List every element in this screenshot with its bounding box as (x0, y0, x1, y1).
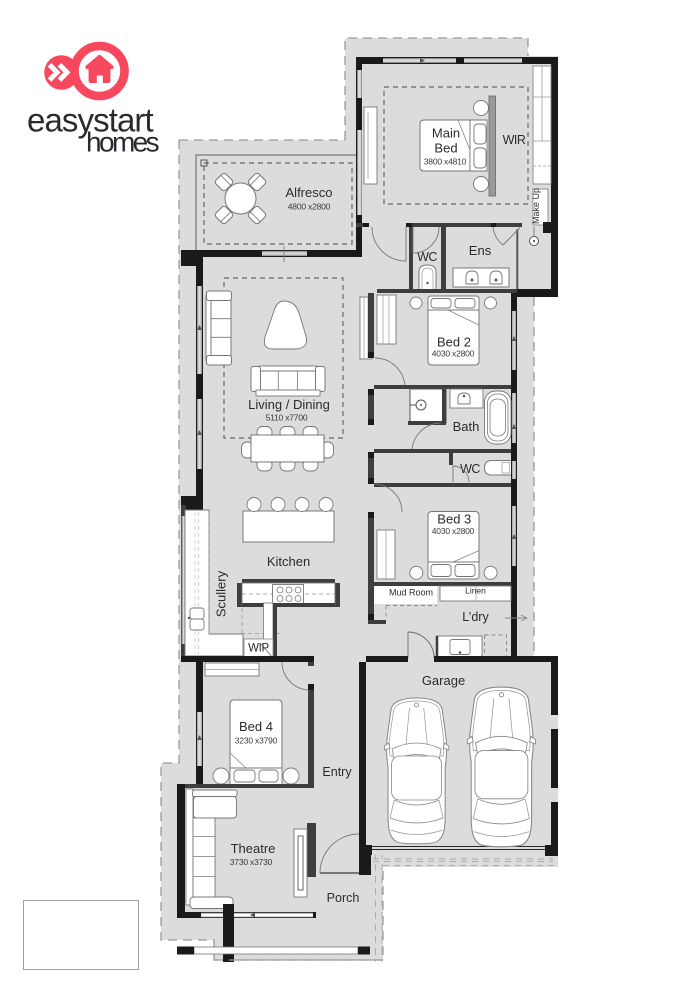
svg-text:Theatre: Theatre (231, 841, 276, 856)
svg-text:3230 x3790: 3230 x3790 (235, 736, 278, 746)
svg-text:Bed 4: Bed 4 (239, 719, 273, 734)
svg-text:Scullery: Scullery (214, 570, 229, 617)
svg-text:Alfresco: Alfresco (286, 185, 333, 200)
svg-text:Bath: Bath (453, 419, 480, 434)
svg-text:4800 x2800: 4800 x2800 (288, 202, 331, 212)
svg-text:Main: Main (432, 126, 460, 141)
svg-text:Porch: Porch (327, 891, 360, 905)
svg-text:WC: WC (460, 462, 480, 476)
svg-text:Bed 2: Bed 2 (437, 334, 471, 349)
svg-text:Kitchen: Kitchen (267, 554, 310, 569)
svg-text:3800 x4810: 3800 x4810 (424, 157, 467, 167)
svg-text:WIR: WIR (503, 133, 526, 147)
svg-text:WIP: WIP (248, 643, 269, 655)
svg-text:4030 x2800: 4030 x2800 (432, 526, 475, 536)
svg-text:Bed 3: Bed 3 (437, 512, 471, 527)
svg-text:3730 x3730: 3730 x3730 (230, 857, 273, 867)
svg-text:Ens: Ens (469, 243, 492, 258)
svg-text:homes: homes (86, 127, 159, 158)
svg-text:Linen: Linen (465, 586, 486, 596)
svg-text:Entry: Entry (322, 765, 352, 779)
svg-text:4030 x2800: 4030 x2800 (432, 349, 475, 359)
svg-text:Make Up: Make Up (531, 188, 541, 224)
svg-text:5110 x7700: 5110 x7700 (266, 413, 308, 423)
svg-text:Mud Room: Mud Room (389, 588, 433, 598)
svg-text:Living / Dining: Living / Dining (248, 397, 330, 412)
svg-text:Bed: Bed (434, 141, 457, 156)
svg-text:Garage: Garage (422, 673, 465, 688)
svg-text:L’dry: L’dry (462, 610, 489, 624)
